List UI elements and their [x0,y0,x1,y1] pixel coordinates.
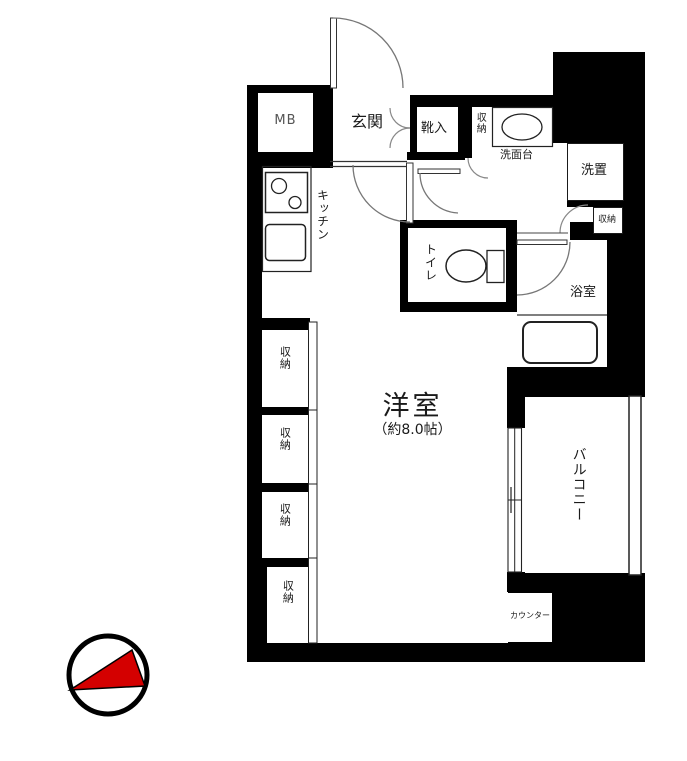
washroom-door-arc [420,173,458,213]
balcony-railing [629,396,641,575]
bathtub-icon [523,322,597,363]
closet-sliding-door [309,322,318,643]
washbasin-label: 洗面台 [500,149,533,161]
washroom-door-leaf [418,169,460,174]
hall-door-leaf [407,163,414,223]
shoe-door-arc-bottom [390,128,410,148]
main-room-size-label: （約8.0帖） [330,423,495,439]
floor-plan: MB 玄関 靴入 収納 洗面台 洗置 収納 キッチン トイレ 浴室 洋室 （約8… [0,0,687,761]
closet-label-4: 収納 [281,580,293,604]
entrance-door-leaf [331,18,337,88]
genkan-label: 玄関 [351,113,383,131]
toilet-bowl-icon [446,250,486,282]
bath-closet-label: 収納 [598,215,616,225]
kitchen-sink-icon [266,225,306,261]
washer-label: 洗置 [581,164,607,179]
mb-label: MB [258,114,313,129]
closet-label-3: 収納 [278,503,290,527]
main-room-label: 洋室 [330,392,495,422]
bathroom-label: 浴室 [570,286,596,301]
bath-door-arc [517,242,570,295]
kitchen-label: キッチン [315,189,328,241]
toilet-label: トイレ [423,243,436,282]
entrance-door-arc [333,18,403,88]
hall-door-arc [353,165,410,222]
closet-label-1: 収納 [278,346,290,370]
balcony-label: バルコニー [570,447,586,522]
bath-door-leaf [517,240,567,245]
counter-label: カウンター [510,612,550,621]
shoe-door-arc-top [390,108,410,128]
hall-closet-label: 収納 [474,112,485,134]
toilet-tank-icon [487,251,504,283]
kutsuiri-label: 靴入 [421,122,447,137]
stove-box [266,173,308,213]
closet-label-2: 収納 [278,427,290,451]
fixtures-layer [0,0,687,761]
bath-closet-door-arc [560,205,588,233]
hall-closet-door-arc [468,158,488,178]
